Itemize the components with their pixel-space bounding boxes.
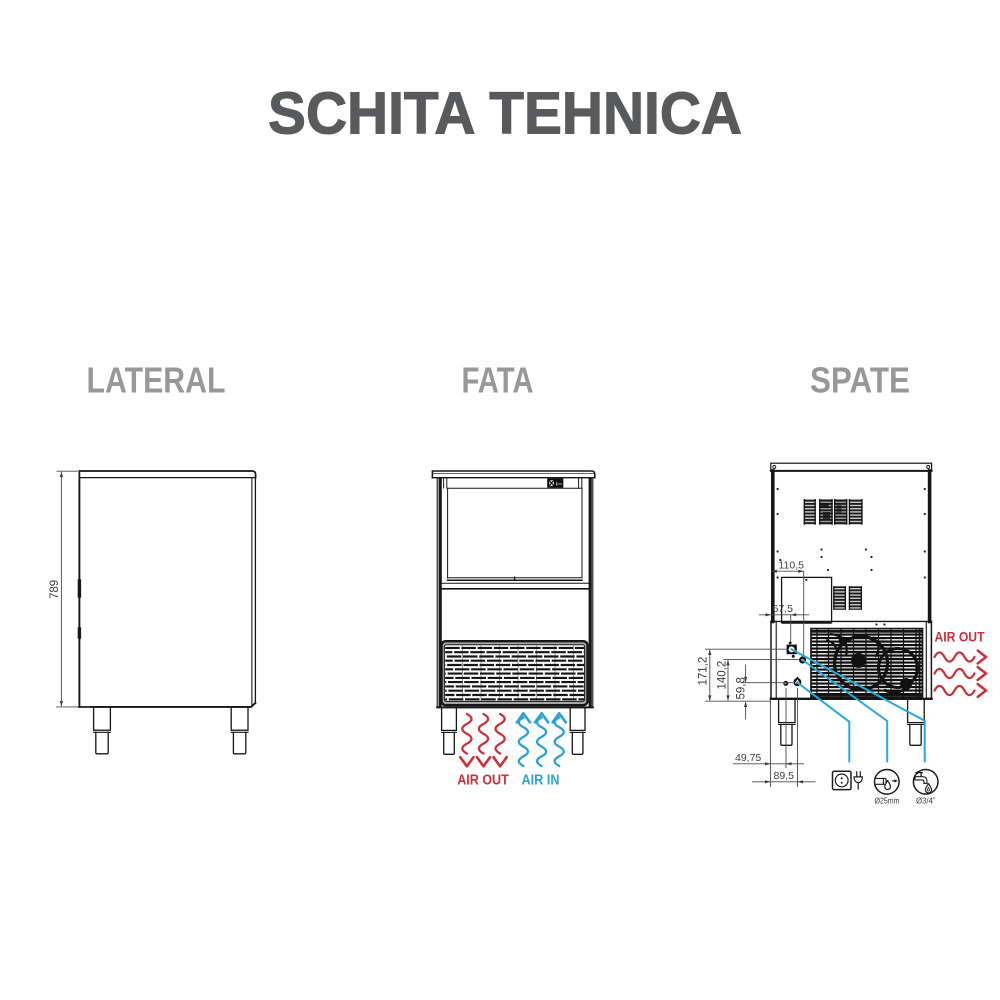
svg-text:59,8: 59,8 bbox=[736, 677, 748, 699]
svg-text:AIR OUT: AIR OUT bbox=[935, 630, 986, 645]
svg-text:89,5: 89,5 bbox=[774, 770, 795, 782]
svg-text:789: 789 bbox=[49, 580, 61, 599]
svg-text:140,2: 140,2 bbox=[717, 661, 729, 690]
svg-text:SCHITA TEHNICA: SCHITA TEHNICA bbox=[268, 81, 742, 147]
svg-text:Ø25mm: Ø25mm bbox=[875, 797, 900, 806]
svg-text:49,75: 49,75 bbox=[735, 752, 761, 764]
svg-text:110,5: 110,5 bbox=[779, 560, 805, 572]
svg-text:FATA: FATA bbox=[462, 360, 534, 401]
svg-text:67,5: 67,5 bbox=[773, 603, 794, 615]
svg-text:AIR IN: AIR IN bbox=[522, 773, 560, 789]
svg-text:LATERAL: LATERAL bbox=[87, 360, 226, 401]
svg-text:Ø3/4”: Ø3/4” bbox=[916, 797, 936, 806]
svg-text:171,2: 171,2 bbox=[698, 657, 710, 686]
svg-text:AIR OUT: AIR OUT bbox=[457, 773, 509, 789]
svg-text:SPATE: SPATE bbox=[810, 360, 910, 401]
